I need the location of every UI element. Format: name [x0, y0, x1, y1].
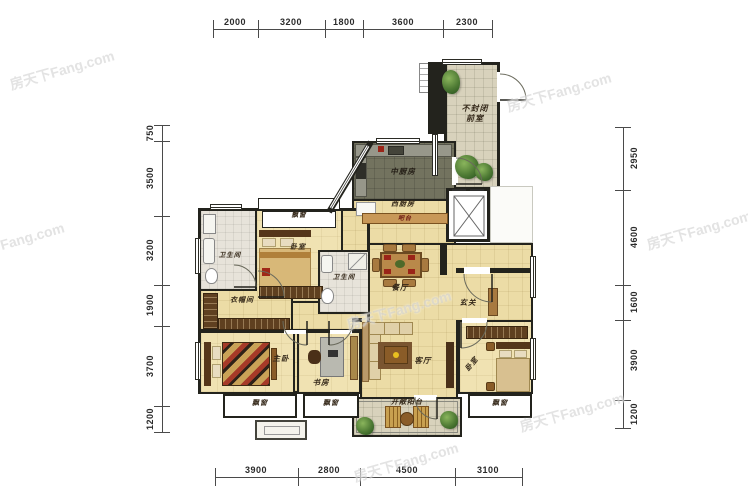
door-opening	[497, 72, 503, 102]
dimension-label: 1200	[629, 394, 639, 434]
dining-chair	[402, 244, 416, 252]
sofa-seat-horizontal	[369, 322, 413, 335]
dimension-label: 2800	[309, 465, 349, 475]
dining-chair	[383, 244, 397, 252]
bookshelf	[350, 336, 358, 380]
window	[530, 338, 536, 380]
placemat	[408, 269, 415, 274]
bed-headboard	[204, 342, 211, 386]
desk-chair	[308, 350, 321, 364]
dimension-line-left	[162, 125, 163, 432]
dimension-tick	[443, 20, 444, 38]
elevator	[446, 188, 490, 242]
dimension-tick	[522, 468, 523, 486]
plant	[356, 417, 374, 435]
table-flower	[393, 352, 399, 358]
sink	[203, 238, 215, 264]
master-bed-blanket	[222, 342, 270, 386]
dimension-label: 3600	[383, 17, 423, 27]
dimension-label: 4500	[387, 465, 427, 475]
bed-headboard	[259, 230, 311, 237]
dimension-line-right	[623, 127, 624, 428]
bed-bench	[271, 348, 277, 380]
window	[210, 204, 242, 210]
balcony-table	[400, 412, 414, 426]
room-label-front-room: 不封闭 前室	[452, 104, 498, 123]
wall-segment	[440, 245, 447, 275]
watermark-text: 房天下Fang.com	[7, 45, 116, 94]
window	[195, 238, 201, 274]
room-label-master: 主卧	[266, 354, 296, 363]
dimension-tick	[615, 127, 631, 128]
nightstand	[486, 382, 495, 391]
room-label-bar: 吧台	[398, 215, 412, 222]
elevator-lobby	[490, 186, 533, 243]
dimension-label: 3700	[145, 346, 155, 386]
sofa-back	[362, 322, 369, 382]
toilet	[321, 288, 334, 304]
dimension-tick	[615, 190, 631, 191]
dimension-line-bottom	[215, 477, 522, 478]
dimension-line-top	[213, 29, 492, 30]
window	[195, 342, 201, 380]
ac-platform	[255, 420, 307, 440]
pillow	[499, 350, 512, 358]
placemat	[384, 255, 391, 260]
bar-counter: 吧台	[362, 213, 448, 224]
dining-chair	[421, 258, 429, 272]
watermark-text: 房天下Fang.com	[644, 205, 748, 254]
centerpiece	[395, 260, 405, 268]
watermark-text: 房天下Fang.com	[504, 67, 613, 116]
window	[376, 138, 420, 144]
washer	[203, 214, 216, 234]
toilet	[205, 268, 218, 284]
placemat	[408, 255, 415, 260]
room-label-bathroom2: 卫生间	[324, 274, 364, 282]
plant	[475, 163, 493, 181]
wardrobe	[466, 326, 528, 339]
room-label-bay-sw: 飘窗	[252, 399, 268, 407]
room-label-entry: 玄关	[450, 298, 486, 307]
window	[530, 256, 536, 298]
watermark-text: 房天下Fang.com	[0, 217, 67, 266]
watermark-text: 房天下Fang.com	[517, 387, 626, 436]
dimension-tick	[298, 468, 299, 486]
dimension-tick	[360, 468, 361, 486]
bay-window-sw: 飘窗	[223, 394, 297, 418]
pillow	[212, 346, 221, 360]
nightstand	[486, 342, 495, 351]
wall-segment	[490, 268, 533, 273]
plant	[440, 411, 458, 429]
dimension-label: 1800	[324, 17, 364, 27]
dimension-label: 1900	[145, 285, 155, 325]
dimension-label: 2950	[629, 138, 639, 178]
dimension-label: 750	[145, 113, 155, 153]
wall-segment	[428, 62, 444, 134]
kitchen-sink	[388, 146, 404, 155]
desk	[320, 337, 344, 377]
dimension-tick	[154, 326, 170, 327]
balcony-chair	[413, 406, 429, 428]
tv-cabinet	[446, 342, 454, 388]
shower	[348, 253, 367, 270]
room-label-dining: 餐厅	[382, 283, 418, 292]
pillow	[514, 350, 527, 358]
door-opening	[284, 330, 306, 334]
plant	[442, 70, 460, 94]
dimension-tick	[455, 468, 456, 486]
watermark-text: 房天下Fang.com	[351, 437, 460, 486]
dimension-tick	[215, 468, 216, 486]
dimension-label: 3500	[145, 158, 155, 198]
room-label-bedroom1: 卧室	[284, 243, 312, 251]
room-label-bay-n: 飘窗	[292, 212, 307, 220]
dimension-tick	[154, 125, 170, 126]
room-label-kitchen-cn: 中厨房	[378, 167, 428, 176]
room-label-bay-e: 飘窗	[492, 399, 508, 407]
bed-headboard	[496, 342, 530, 349]
dimension-label: 3100	[468, 465, 508, 475]
dimension-label: 1200	[145, 399, 155, 439]
placemat	[384, 269, 391, 274]
bay-window-north-outer	[258, 198, 340, 210]
pillow	[212, 364, 221, 378]
dimension-label: 3900	[236, 465, 276, 475]
pillow	[262, 238, 276, 247]
room-label-living: 客厅	[406, 356, 440, 365]
kitchen-red-accent	[378, 146, 384, 152]
room-label-front-room-line2: 前室	[466, 113, 484, 123]
wall-segment	[456, 268, 464, 273]
bay-window-s: 飘窗	[303, 394, 359, 418]
cloak-wardrobe-left	[203, 293, 218, 329]
laptop	[328, 350, 338, 357]
dimension-tick	[154, 285, 170, 286]
cloak-wardrobe-bottom	[218, 318, 290, 330]
dimension-label: 3200	[145, 230, 155, 270]
room-label-bathroom1: 卫生间	[208, 252, 252, 260]
dresser	[259, 286, 323, 299]
dimension-tick	[492, 20, 493, 38]
door-opening	[464, 267, 490, 274]
kitchen-stove	[356, 163, 366, 179]
room-label-kitchen-west: 西厨房	[380, 200, 426, 208]
dimension-label: 2300	[447, 17, 487, 27]
room-label-study: 书房	[306, 378, 336, 387]
balcony-chair	[385, 406, 401, 428]
dimension-tick	[154, 406, 170, 407]
dimension-label: 1600	[629, 282, 639, 322]
dimension-label: 3900	[629, 340, 639, 380]
dimension-tick	[154, 216, 170, 217]
dimension-tick	[154, 432, 170, 433]
room-label-cloakroom: 衣帽间	[218, 296, 266, 304]
ac-platform-inner	[264, 426, 300, 435]
floorplan-image: 房天下Fang.com 房天下Fang.com 房天下Fang.com 房天下F…	[0, 0, 748, 499]
room-label-bay-s: 飘窗	[323, 399, 339, 407]
window	[432, 134, 438, 176]
bay-window-north: 飘窗	[262, 211, 336, 228]
dimension-label: 4600	[629, 217, 639, 257]
bay-window-e: 飘窗	[468, 394, 532, 418]
door-opening	[330, 330, 352, 334]
room-label-balcony: 开敞阳台	[378, 398, 436, 406]
dimension-label: 3200	[271, 17, 311, 27]
dimension-label: 2000	[215, 17, 255, 27]
shoe-cabinet	[488, 288, 498, 316]
dining-chair	[372, 258, 380, 272]
bed-stripe	[259, 252, 311, 258]
dimension-tick	[213, 20, 214, 38]
room-label-front-room-line1: 不封闭	[462, 103, 489, 113]
window	[442, 59, 482, 65]
door-opening	[462, 318, 487, 323]
wall-segment	[352, 318, 362, 322]
red-stool	[262, 268, 270, 276]
bed-blanket	[496, 358, 530, 392]
sink	[321, 255, 333, 273]
dimension-tick	[258, 20, 259, 38]
dimension-tick	[154, 141, 170, 142]
